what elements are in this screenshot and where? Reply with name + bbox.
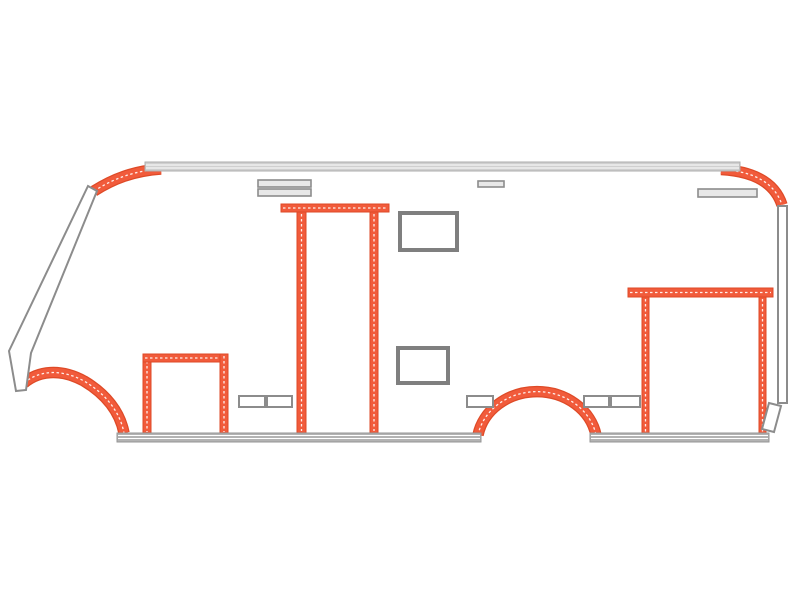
entry-door-frame-header[interactable] (143, 354, 228, 362)
rear-corner-pillar (778, 206, 787, 403)
service-hatch-2 (267, 396, 292, 407)
mid-door-frame-header[interactable] (281, 204, 389, 212)
service-hatch-3 (467, 396, 493, 407)
rear-garage-frame-header[interactable] (628, 288, 773, 297)
service-hatch-1 (239, 396, 265, 407)
rear-garage-frame-right-post[interactable] (759, 297, 766, 434)
mid-door-frame-right-post[interactable] (370, 212, 378, 433)
service-hatch-4 (584, 396, 609, 407)
rear-wheel-arch-trim[interactable] (478, 392, 596, 435)
vehicle-side-profile-diagram (0, 0, 800, 601)
roof-vent-slat-upper (258, 180, 311, 187)
front-wheel-arch-trim[interactable] (24, 373, 124, 433)
roof-vent-slat-lower (258, 189, 311, 196)
rear-garage-frame-left-post[interactable] (642, 297, 649, 434)
service-hatch-5 (611, 396, 640, 407)
skirt-rail-front (117, 433, 481, 442)
entry-door-frame-right-post[interactable] (220, 354, 228, 434)
windshield-pillar (9, 186, 97, 391)
front-roof-corner-trim[interactable] (94, 169, 161, 191)
rear-roof-vent (698, 189, 757, 197)
roof-vent-small (478, 181, 504, 187)
mid-door-frame-left-post[interactable] (297, 212, 306, 433)
entry-door-frame-left-post[interactable] (143, 354, 151, 434)
upper-window (400, 213, 457, 250)
vehicle-schematic-canvas (0, 0, 800, 601)
skirt-rail-rear (590, 433, 769, 442)
rear-roof-corner-trim[interactable] (721, 170, 782, 206)
lower-window (398, 348, 448, 383)
roof-rail (145, 162, 740, 171)
